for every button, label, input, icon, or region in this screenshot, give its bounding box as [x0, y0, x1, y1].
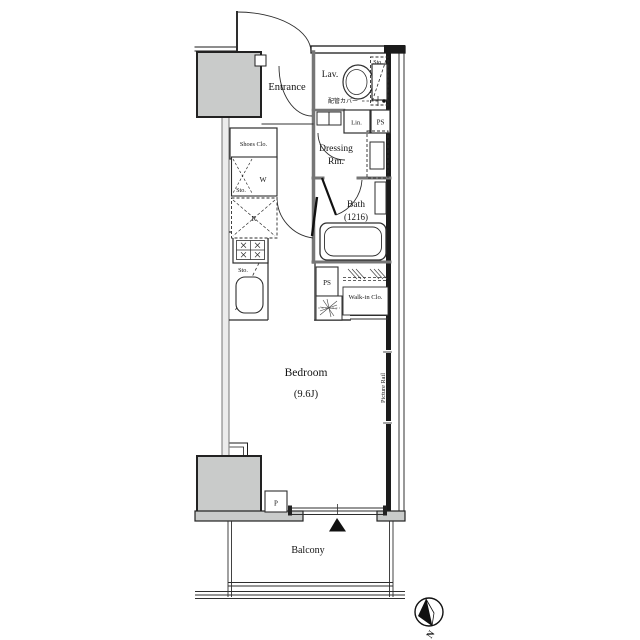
pipe-space-upper-label: PS — [377, 119, 385, 127]
dressing-room-label-line2: Rm. — [328, 157, 344, 167]
floor-plan-page: Entrance Lav. Sto. 配管カバー Lin. PS Shoes C… — [0, 0, 640, 640]
north-compass-icon — [415, 598, 443, 626]
lavatory-label: Lav. — [322, 70, 339, 80]
balcony-label: Balcony — [291, 545, 324, 556]
bath-size-label: (1216) — [344, 212, 368, 222]
lavatory-counter — [317, 112, 341, 125]
storage-kitchen-label: Sto. — [238, 267, 248, 274]
storage-toilet-label: Sto. — [373, 60, 383, 66]
toilet-icon — [343, 64, 387, 100]
entrance-label: Entrance — [268, 82, 306, 93]
walk-in-closet-label: Walk-in Clo. — [349, 294, 383, 301]
shoes-closet-label: Shoes Clo. — [240, 141, 268, 148]
entry-marker-icon — [329, 518, 346, 532]
washer-label: W — [259, 175, 267, 184]
stove-icon — [233, 237, 268, 263]
column-block-top — [197, 52, 266, 117]
compass-north-label: N — [425, 629, 437, 640]
bath-label: Bath — [347, 200, 365, 210]
bedroom-label: Bedroom — [285, 367, 328, 379]
floor-plan: Entrance Lav. Sto. 配管カバー Lin. PS Shoes C… — [0, 0, 640, 640]
picture-rail-label: Picture Rail — [380, 373, 387, 403]
pipe-space-lower-label: PS — [323, 279, 331, 287]
washbasin-icon — [367, 131, 388, 178]
storage-washer-label: Sto. — [236, 187, 246, 194]
pipe-cover-label: 配管カバー — [328, 97, 358, 105]
refrigerator-label: R — [252, 215, 257, 223]
linen-label: Lin. — [351, 120, 362, 127]
pipe-shaft-label: P — [274, 500, 278, 508]
bedroom-size-label: (9.6J) — [294, 389, 319, 400]
balcony-railing — [195, 521, 405, 599]
dressing-room-label-line1: Dressing — [319, 144, 353, 154]
